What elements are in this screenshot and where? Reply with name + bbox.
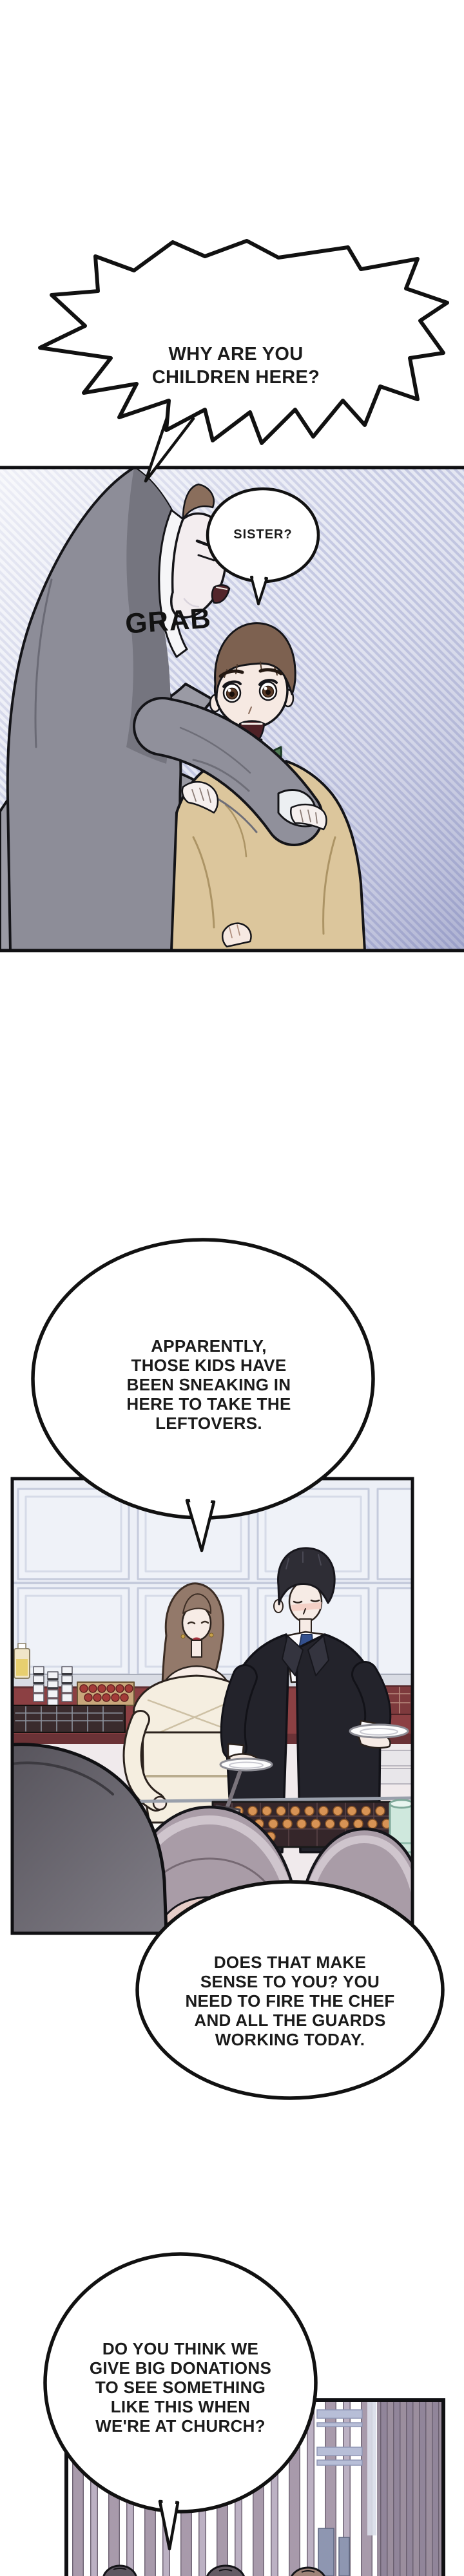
webtoon-page: WHY ARE YOU CHILDREN HERE? SISTER? GRAB … [0, 0, 464, 2576]
fire-bubble-text: DOES THAT MAKE SENSE TO YOU? YOU NEED TO… [161, 1953, 419, 2049]
apparently-bubble-text: APPARENTLY, THOSE KIDS HAVE BEEN SNEAKIN… [80, 1336, 338, 1433]
church-bubble-text: DO YOU THINK WE GIVE BIG DONATIONS TO SE… [52, 2339, 309, 2436]
scream-bubble-text: WHY ARE YOU CHILDREN HERE? [107, 343, 365, 389]
panel-2 [0, 1479, 429, 1933]
sister-bubble-text: SISTER? [198, 527, 327, 542]
